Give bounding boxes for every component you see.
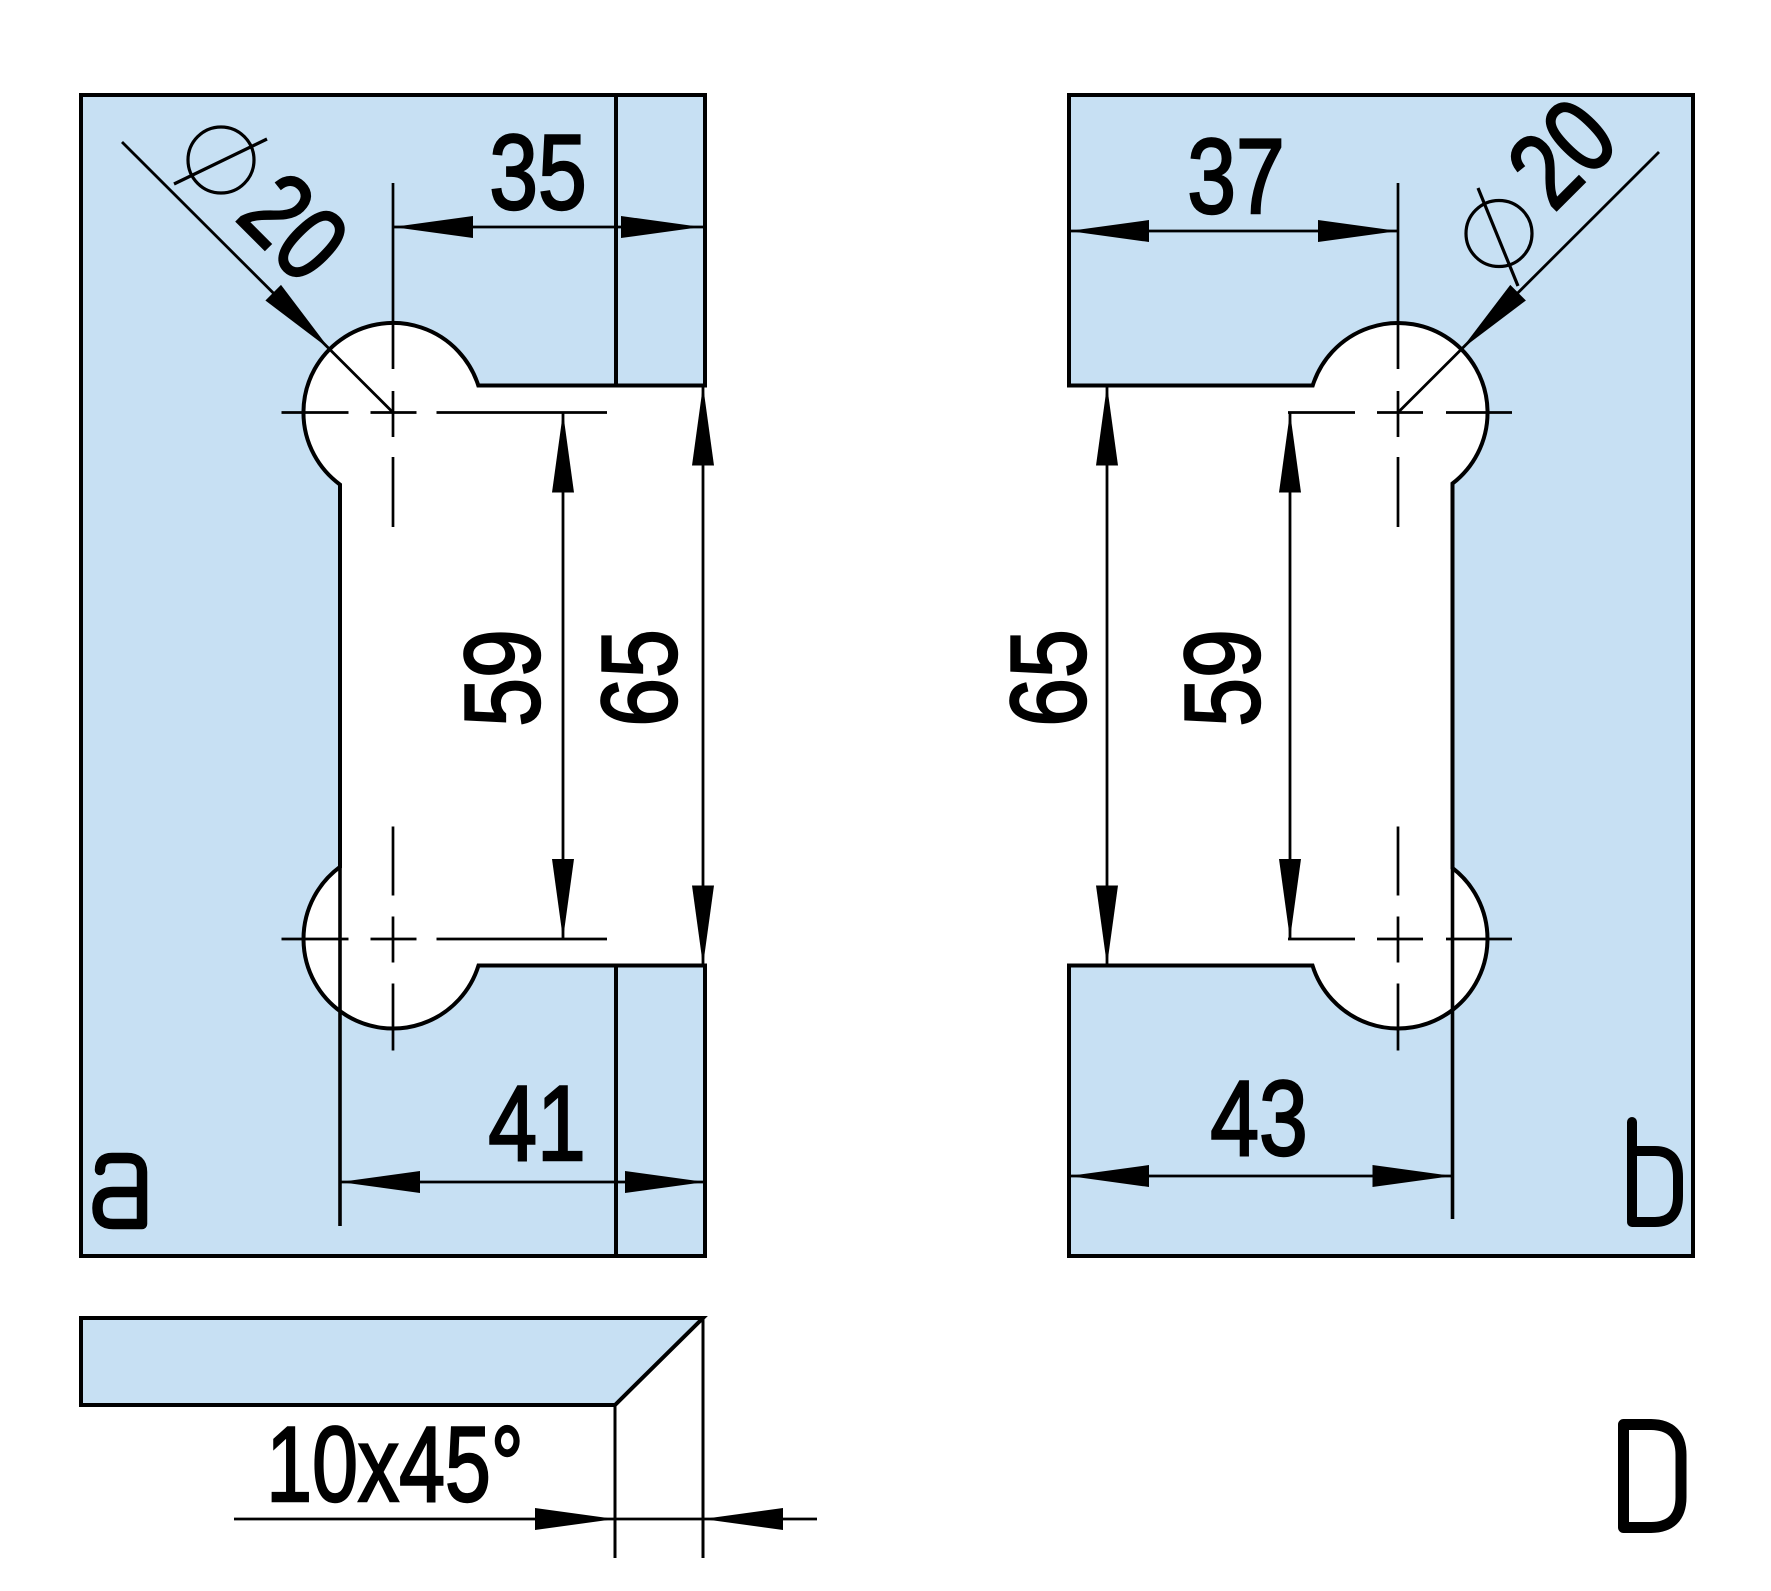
svg-text:59: 59 [442,629,562,727]
svg-text:65: 65 [988,629,1108,727]
svg-text:43: 43 [1210,1058,1308,1178]
svg-text:59: 59 [1162,629,1282,727]
svg-text:41: 41 [488,1063,586,1183]
svg-text:10x45°: 10x45° [266,1406,523,1525]
svg-text:35: 35 [489,112,587,232]
svg-text:65: 65 [579,629,699,727]
svg-text:37: 37 [1187,116,1285,236]
